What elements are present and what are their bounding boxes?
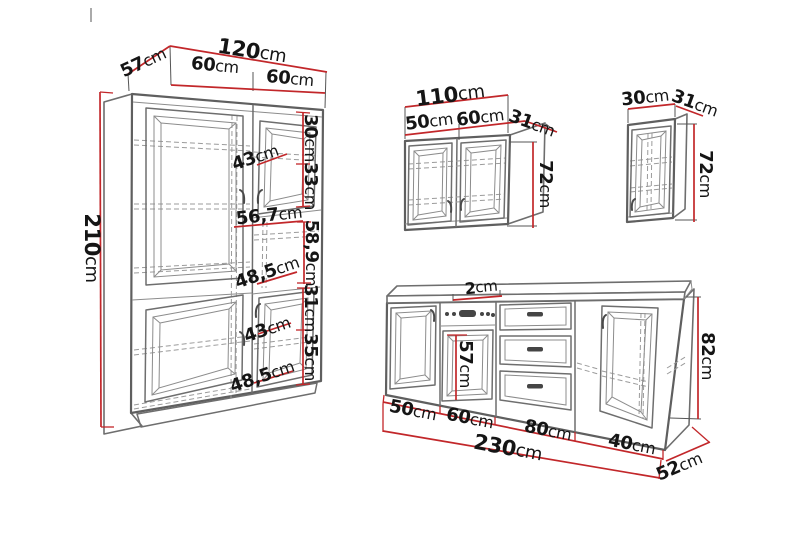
dim-tall-upper-door-part2: 33cm bbox=[301, 162, 322, 210]
oven-knob bbox=[452, 312, 456, 316]
dim-tall-upper-door-part1: 30cm bbox=[301, 114, 322, 162]
dim-base-oven-height: 57cm bbox=[456, 340, 477, 388]
dim-base-worktop-thickness: 2cm bbox=[464, 276, 498, 298]
dim-narrow-depth: 31cm bbox=[669, 85, 721, 121]
oven-display bbox=[459, 310, 476, 317]
dim-tall-left-width: 60cm bbox=[190, 52, 239, 77]
diagram-canvas: 57cm 120cm 60cm 60cm 210cm 30cm 33cm 43c… bbox=[0, 0, 800, 533]
kitchen-dimension-diagram: 57cm 120cm 60cm 60cm 210cm 30cm 33cm 43c… bbox=[0, 0, 800, 533]
dim-tall-lower-door-part2: 35cm bbox=[301, 333, 322, 381]
oven-knob bbox=[480, 312, 484, 316]
dim-wide-right-door: 60cm bbox=[455, 104, 505, 131]
oven-knob bbox=[445, 312, 449, 316]
wall-cabinet-narrow bbox=[627, 114, 687, 222]
dim-tall-right-width: 60cm bbox=[265, 65, 314, 90]
drawer-handle bbox=[527, 312, 543, 317]
drawer-handle bbox=[527, 384, 543, 389]
dim-base-height: 82cm bbox=[698, 332, 719, 380]
dim-tall-lower-door-part1: 31cm bbox=[301, 284, 322, 332]
dim-wide-height: 72cm bbox=[536, 160, 557, 208]
dim-tall-height: 210cm bbox=[80, 213, 104, 282]
dim-narrow-height: 72cm bbox=[696, 150, 717, 198]
dim-tall-depth: 57cm bbox=[117, 42, 169, 81]
dim-tall-niche-height: 58,9cm bbox=[302, 220, 323, 286]
oven-knob bbox=[491, 313, 495, 317]
oven-knob bbox=[486, 312, 490, 316]
drawer-handle bbox=[527, 347, 543, 352]
wall-cabinet-wide bbox=[405, 123, 545, 230]
dim-base-depth: 52cm bbox=[653, 447, 705, 485]
